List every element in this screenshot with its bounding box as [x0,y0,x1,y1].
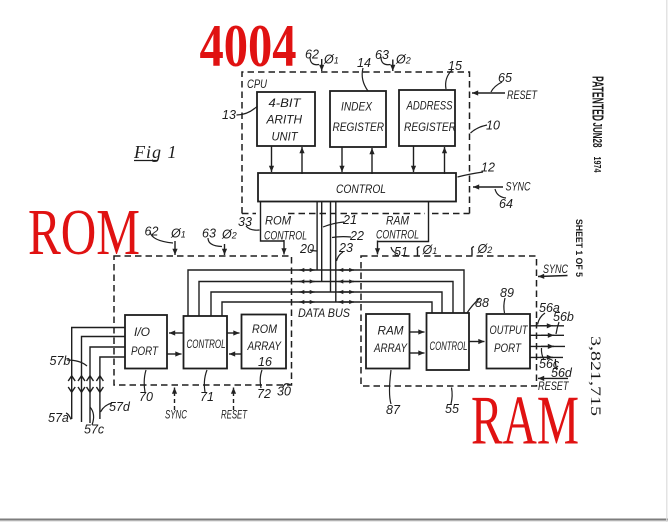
svg-text:ROM: ROM [28,196,140,268]
svg-text:ADDRESS: ADDRESS [406,99,453,113]
svg-text:57b: 57b [50,354,71,368]
svg-text:INDEX: INDEX [341,100,373,114]
svg-text:JUN28: JUN28 [590,123,604,148]
svg-text:13: 13 [222,108,236,122]
svg-text:57d: 57d [109,400,131,414]
svg-text:33: 33 [238,215,252,229]
svg-text:Fig 1: Fig 1 [133,142,178,162]
svg-text:14: 14 [357,56,371,70]
svg-text:3,821,715: 3,821,715 [587,336,603,416]
svg-text:51: 51 [394,245,408,259]
svg-text:63: 63 [202,227,216,241]
svg-text:Ø2: Ø2 [477,242,493,256]
svg-text:ARRAY: ARRAY [247,339,282,353]
svg-text:55: 55 [445,402,459,416]
svg-text:SYNC: SYNC [506,180,531,194]
svg-text:OUTPUT: OUTPUT [490,323,529,337]
svg-text:57a: 57a [48,411,69,425]
svg-text:30: 30 [277,385,291,399]
svg-text:20: 20 [299,242,314,256]
svg-text:CONTROL: CONTROL [187,337,226,351]
svg-text:RESET: RESET [507,88,538,102]
svg-text:Ø1: Ø1 [323,53,339,67]
svg-text:57c: 57c [84,423,105,437]
svg-text:PATENTED: PATENTED [589,76,606,121]
svg-text:21: 21 [342,213,357,227]
svg-text:65: 65 [498,71,512,85]
svg-text:4004: 4004 [200,12,297,80]
svg-text:16: 16 [258,355,272,369]
svg-text:UNIT: UNIT [272,130,300,144]
svg-text:71: 71 [200,390,214,404]
svg-text:70: 70 [139,390,153,404]
svg-text:Ø2: Ø2 [221,228,237,242]
svg-text:I/O: I/O [134,325,150,339]
svg-text:ARRAY: ARRAY [373,341,408,355]
svg-text:RAM: RAM [378,324,404,338]
svg-text:Ø1: Ø1 [170,227,186,241]
svg-text:89: 89 [500,286,514,300]
svg-text:CONTROL: CONTROL [430,339,468,353]
svg-text:62: 62 [145,225,159,239]
svg-text:DATA BUS: DATA BUS [298,306,350,320]
svg-text:88: 88 [475,296,489,310]
svg-text:62: 62 [305,48,319,62]
svg-text:15: 15 [448,59,462,73]
svg-text:PORT: PORT [131,344,159,358]
svg-text:Ø1: Ø1 [422,243,438,257]
svg-text:SHEET 1 OF 5: SHEET 1 OF 5 [574,219,584,277]
svg-text:CONTROL: CONTROL [336,182,386,196]
svg-text:72: 72 [257,387,271,401]
svg-text:SYNC: SYNC [543,262,568,276]
svg-text:RESET: RESET [221,408,248,422]
svg-text:CONTROL: CONTROL [376,228,419,242]
svg-text:CONTROL: CONTROL [264,229,307,243]
svg-text:23: 23 [338,241,353,255]
svg-text:12: 12 [481,161,495,175]
svg-text:56d: 56d [551,366,573,380]
svg-text:ARITH: ARITH [266,113,303,127]
svg-text:56b: 56b [553,310,574,324]
svg-text:ROM: ROM [265,214,291,228]
svg-text:REGISTER: REGISTER [333,120,385,134]
svg-text:RAM: RAM [386,214,409,228]
svg-text:64: 64 [499,197,513,211]
svg-text:87: 87 [386,403,401,417]
svg-text:PORT: PORT [494,341,522,355]
svg-text:REGISTER: REGISTER [404,120,456,134]
svg-text:ROM: ROM [252,322,277,336]
svg-text:4-BIT: 4-BIT [269,96,303,110]
svg-text:1974: 1974 [591,157,602,173]
svg-text:10: 10 [486,119,500,133]
svg-text:Ø2: Ø2 [395,53,411,67]
svg-text:RAM: RAM [471,382,579,459]
svg-text:SYNC: SYNC [165,408,187,422]
svg-text:63: 63 [375,48,389,62]
